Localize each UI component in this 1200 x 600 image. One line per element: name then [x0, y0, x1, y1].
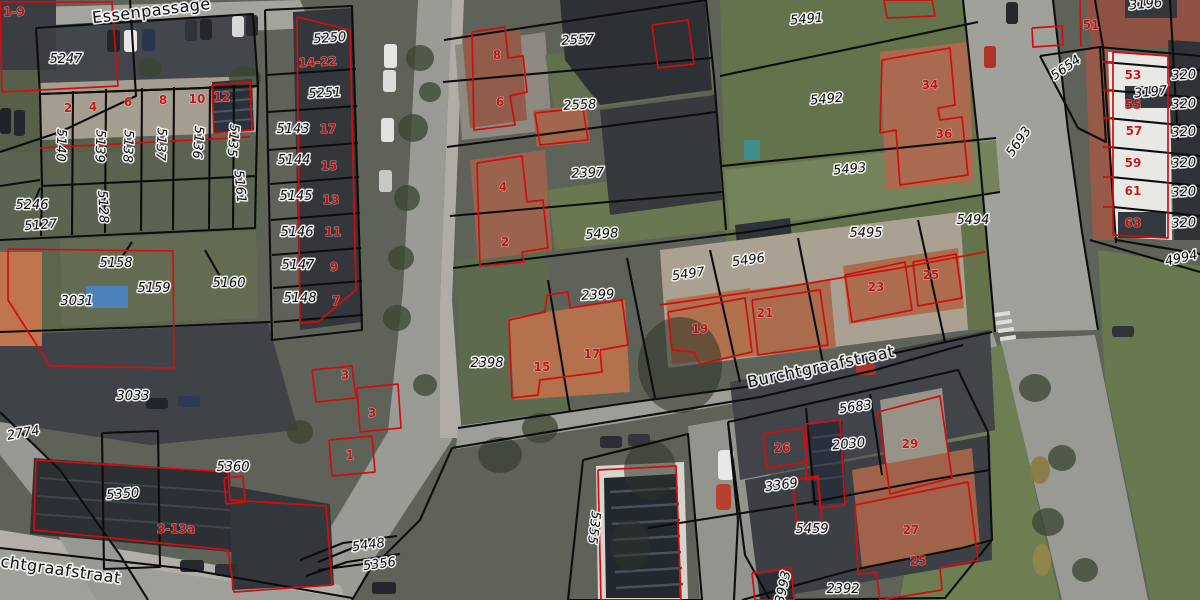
house-number-label: 2 [501, 235, 509, 249]
parcel-number-label: 2557 [561, 32, 596, 49]
house-number-label: 23 [868, 280, 885, 294]
house-number-label: 21 [757, 306, 774, 320]
house-number-label: 61 [1125, 184, 1142, 198]
house-number-label: 19 [692, 322, 709, 336]
parcel-number-label-clipped: 320 [1171, 67, 1197, 83]
house-number-label: 7 [332, 294, 340, 308]
parcel-number-label: 5493 [833, 161, 867, 179]
parcel-number-label: 5127 [24, 217, 59, 234]
house-number-label: 6 [496, 95, 504, 109]
parcel-number-label: 5246 [15, 198, 48, 213]
house-number-label: 3-13a [157, 522, 195, 536]
building-outline [1080, 0, 1081, 47]
house-number-label: 17 [584, 347, 601, 361]
parcel-number-label: 2030 [832, 436, 866, 454]
parcel-number-label: 3033 [116, 389, 149, 404]
parcel-boundary [173, 87, 174, 230]
parcel-number-label: 5140 [52, 128, 68, 162]
parcel-number-label: 2558 [563, 97, 597, 114]
house-number-label: 4 [499, 180, 507, 194]
parcel-number-label-clipped: 320 [1171, 155, 1197, 171]
house-number-label: 9 [330, 260, 338, 274]
parcel-number-label: 5138 [119, 129, 136, 163]
house-number-label: 2 [64, 101, 72, 115]
parcel-number-label: 3031 [60, 294, 93, 309]
house-number-label: 12 [214, 90, 231, 104]
parcel-number-label-clipped: 320 [1171, 215, 1197, 231]
house-number-label: 36 [936, 127, 953, 141]
parcel-number-label: 2392 [826, 582, 859, 597]
parcel-number-label: 5143 [276, 122, 309, 137]
parcel-number-label: 5161 [231, 170, 249, 204]
house-number-label: 57 [1126, 124, 1143, 138]
house-number-label: 14-22 [298, 54, 337, 70]
parcel-number-label-clipped: 320 [1171, 96, 1197, 112]
parcel-number-label: 5137 [152, 127, 169, 162]
map-viewport[interactable]: 5247524651275128516151585159516030313033… [0, 0, 1200, 600]
house-number-label: 8 [159, 93, 167, 107]
parcel-number-label: 2398 [470, 356, 503, 371]
parcel-number-label: 5247 [49, 52, 83, 67]
parcel-number-label: 5145 [279, 189, 312, 204]
parcel-number-label: 5136 [189, 125, 206, 159]
house-number-label: 6 [124, 95, 132, 109]
house-number-label: 11 [325, 225, 342, 239]
parcel-number-label: 5492 [810, 91, 844, 109]
parcel-number-label: 5350 [106, 486, 140, 503]
house-number-label: 13 [323, 193, 340, 207]
house-number-label: 3 [368, 406, 376, 420]
house-number-label: 25 [910, 554, 927, 568]
house-number-label: 63 [1125, 216, 1142, 230]
house-number-label: 10 [189, 92, 206, 106]
house-number-label: 4 [89, 100, 97, 114]
parcel-number-label: 5491 [790, 11, 824, 29]
parcel-number-label: 5146 [280, 225, 313, 240]
house-number-label: 27 [903, 523, 920, 537]
parcel-boundary [209, 86, 210, 229]
parcel-number-label: 5135 [224, 123, 242, 157]
house-number-label: 1-9 [3, 5, 25, 19]
parcel-number-label: 2399 [581, 287, 615, 304]
map-canvas[interactable]: 5247524651275128516151585159516030313033… [0, 0, 1200, 600]
house-number-label: 17 [320, 122, 337, 136]
parcel-number-label: 5139 [91, 129, 107, 163]
house-number-label: 1 [346, 448, 354, 462]
parcel-number-label: 5251 [308, 85, 342, 102]
house-number-label: 15 [321, 159, 338, 173]
parcel-number-label: 5148 [283, 291, 316, 306]
parcel-number-label: 5494 [956, 213, 989, 228]
house-number-label: 15 [534, 360, 551, 374]
house-number-label: 29 [902, 437, 919, 451]
parcel-number-label: 5459 [795, 522, 828, 537]
parcel-number-label-clipped: 320 [1171, 124, 1197, 140]
parcel-number-label: 5360 [216, 460, 249, 475]
parcel-number-label: 5160 [212, 276, 245, 291]
parcel-number-label: 5159 [137, 281, 170, 296]
parcel-number-label-clipped: 320 [1171, 184, 1197, 200]
parcel-boundary [141, 88, 142, 231]
house-number-label: 55 [1125, 98, 1142, 112]
house-number-label: 53 [1125, 68, 1142, 82]
parcel-number-label: 5144 [277, 153, 310, 168]
parcel-number-label: 5128 [94, 190, 111, 224]
parcel-number-label: 5147 [281, 258, 315, 273]
house-number-label: 3 [341, 368, 349, 382]
house-number-label: 25 [923, 268, 940, 282]
parcel-boundary [255, 176, 256, 228]
parcel-number-label: 5498 [585, 226, 619, 243]
house-number-label: 8 [493, 48, 501, 62]
house-number-label: 51 [1083, 18, 1100, 32]
parcel-number-label: 5495 [849, 226, 882, 241]
house-number-label: 59 [1125, 156, 1142, 170]
house-number-label: 34 [922, 78, 939, 92]
house-number-label: 26 [774, 441, 791, 455]
parcel-number-label: 5158 [99, 256, 132, 271]
parcel-number-label: 5250 [313, 30, 347, 47]
parcel-number-label: 2397 [571, 165, 606, 182]
